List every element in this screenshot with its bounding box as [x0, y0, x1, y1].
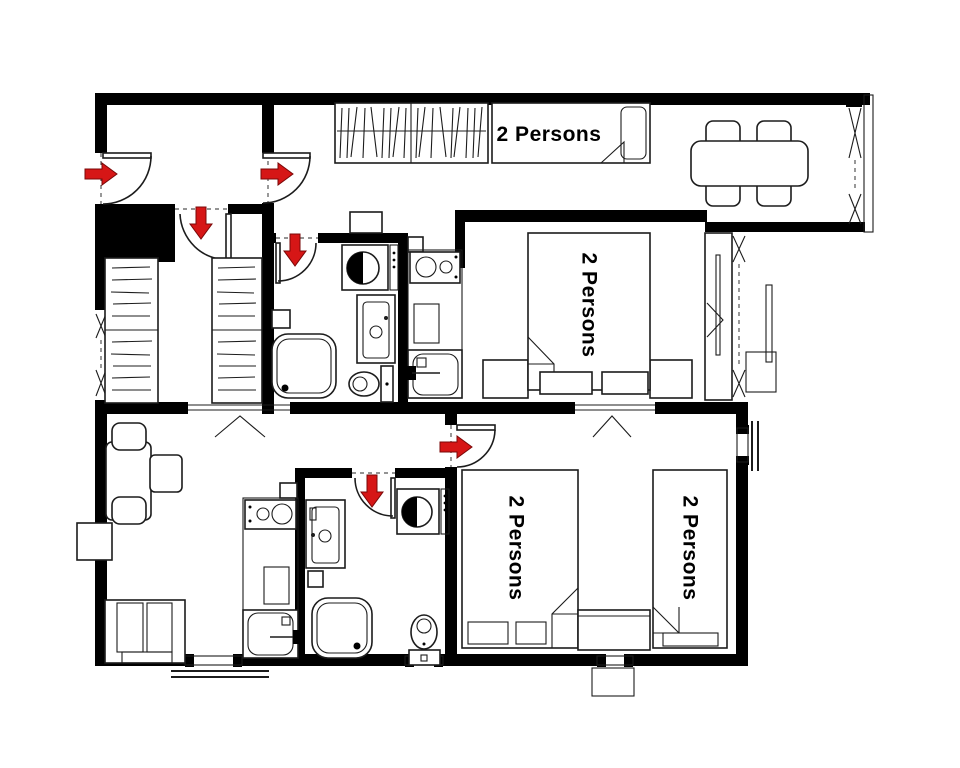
- bed-bottom-left-label: 2 Persons: [505, 496, 528, 601]
- kitchenette-1: [406, 250, 462, 398]
- bed-bottom-right-label: 2 Persons: [679, 496, 702, 601]
- wall-cabinet: [272, 310, 290, 328]
- armchair: [106, 423, 151, 524]
- wall-cabinet: [308, 571, 323, 587]
- bedroom-master: 2 Persons: [483, 233, 692, 398]
- kitchenette-2: [243, 483, 301, 658]
- sliding-door-bedroom: [575, 405, 655, 437]
- vanity-sink: [357, 295, 395, 363]
- window-box-left: [77, 523, 112, 560]
- bench-between-beds: [578, 610, 650, 650]
- balcony-door: [705, 233, 776, 400]
- shower: [272, 334, 336, 398]
- arrow-entry-icon: [85, 163, 117, 185]
- wardrobe-left: [105, 258, 158, 403]
- bench: [483, 360, 528, 398]
- bed-top: 2 Persons: [492, 103, 650, 163]
- kitchen-sink: [243, 610, 301, 658]
- shower: [312, 598, 372, 658]
- sliding-door-living: [188, 405, 290, 437]
- floor-plan: 2 Persons: [0, 0, 960, 768]
- bench: [650, 360, 692, 398]
- floor-plan-canvas: 2 Persons: [0, 0, 960, 768]
- washing-machine: [397, 489, 449, 534]
- arrow-hall-dressing-icon: [190, 207, 212, 239]
- counter: [414, 304, 439, 343]
- dining-table: [691, 141, 808, 186]
- bathroom-2: [306, 489, 449, 665]
- bench: [540, 372, 592, 394]
- wardrobe-right: [212, 258, 262, 403]
- arrow-bedroom-2-icon: [440, 436, 472, 458]
- arrow-bathroom-1-icon: [284, 234, 306, 266]
- vanity-sink: [306, 500, 345, 568]
- shaft: [350, 212, 382, 233]
- toilet: [409, 615, 440, 665]
- bed-bottom-left: 2 Persons: [462, 470, 578, 648]
- kitchen-sink: [406, 350, 462, 398]
- bed-bottom-right: 2 Persons: [653, 470, 727, 648]
- shaft: [280, 483, 297, 498]
- arrow-hall-living-icon: [261, 163, 293, 185]
- washing-machine: [342, 245, 398, 290]
- hanging-wardrobe: [335, 103, 488, 163]
- side-table: [150, 455, 182, 492]
- bench: [602, 372, 648, 394]
- stove: [410, 252, 460, 283]
- window-right-top: [849, 95, 873, 232]
- toilet: [349, 366, 393, 402]
- bed-top-label: 2 Persons: [497, 123, 602, 146]
- bedroom-2: 2 Persons 2 Persons: [462, 470, 727, 650]
- bed-master: 2 Persons: [528, 233, 650, 390]
- living-room: [105, 423, 185, 663]
- stove: [245, 500, 296, 529]
- wall-mass: [95, 204, 175, 262]
- counter: [264, 567, 289, 604]
- sofa: [105, 600, 185, 663]
- bed-master-label: 2 Persons: [578, 253, 601, 358]
- dining-set: [691, 121, 808, 206]
